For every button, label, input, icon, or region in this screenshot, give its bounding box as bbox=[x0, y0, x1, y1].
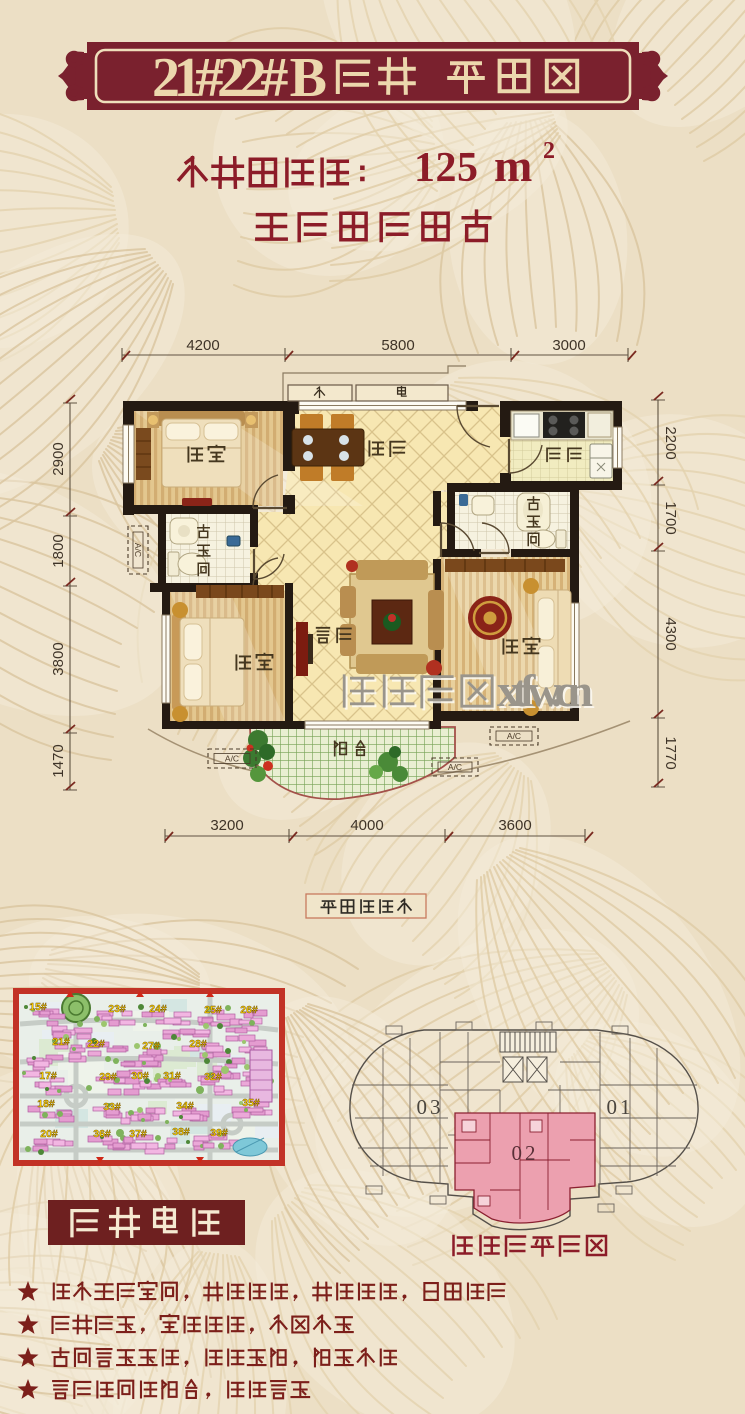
svg-text:26#: 26# bbox=[240, 1004, 258, 1016]
svg-text:A/C: A/C bbox=[507, 731, 521, 741]
svg-text:21#22# B: 21#22# B bbox=[152, 47, 327, 109]
svg-text:20#: 20# bbox=[40, 1128, 58, 1140]
svg-text:02: 02 bbox=[512, 1141, 539, 1165]
svg-text:38#: 38# bbox=[172, 1126, 190, 1138]
svg-text:4300: 4300 bbox=[662, 617, 679, 650]
svg-text:xtfw.cn: xtfw.cn bbox=[497, 665, 593, 716]
svg-text:25#: 25# bbox=[204, 1004, 222, 1016]
svg-text:15#: 15# bbox=[29, 1001, 47, 1013]
svg-text:3800: 3800 bbox=[50, 642, 67, 675]
svg-text:22#: 22# bbox=[87, 1038, 105, 1050]
svg-text:01: 01 bbox=[607, 1095, 634, 1119]
svg-text:35#: 35# bbox=[242, 1097, 260, 1109]
svg-text:3200: 3200 bbox=[210, 817, 243, 834]
svg-text:2: 2 bbox=[543, 138, 555, 164]
svg-text:36#: 36# bbox=[93, 1128, 111, 1140]
svg-text:03: 03 bbox=[417, 1095, 444, 1119]
svg-text:28#: 28# bbox=[189, 1038, 207, 1050]
svg-text:A/C: A/C bbox=[225, 754, 239, 764]
svg-text:21#: 21# bbox=[52, 1036, 70, 1048]
svg-text:23#: 23# bbox=[108, 1003, 126, 1015]
svg-text:3600: 3600 bbox=[498, 817, 531, 834]
svg-text:4000: 4000 bbox=[350, 817, 383, 834]
svg-text:3000: 3000 bbox=[552, 337, 585, 354]
svg-text:18#: 18# bbox=[37, 1098, 55, 1110]
svg-text:m: m bbox=[494, 140, 532, 191]
svg-text:33#: 33# bbox=[103, 1101, 121, 1113]
svg-text:1770: 1770 bbox=[662, 736, 679, 769]
svg-text:5800: 5800 bbox=[381, 337, 414, 354]
svg-text:24#: 24# bbox=[149, 1003, 167, 1015]
svg-text:27#: 27# bbox=[142, 1040, 160, 1052]
svg-text:A/C: A/C bbox=[133, 543, 143, 557]
svg-text:2200: 2200 bbox=[662, 426, 679, 459]
svg-text:31#: 31# bbox=[163, 1070, 181, 1082]
svg-text:2900: 2900 bbox=[50, 442, 67, 475]
svg-text:125: 125 bbox=[414, 145, 478, 191]
svg-text:39#: 39# bbox=[210, 1127, 228, 1139]
svg-text:1700: 1700 bbox=[662, 501, 679, 534]
svg-text:17#: 17# bbox=[39, 1070, 57, 1082]
svg-text:4200: 4200 bbox=[186, 337, 219, 354]
svg-text:37#: 37# bbox=[129, 1128, 147, 1140]
svg-text:32#: 32# bbox=[204, 1071, 222, 1083]
svg-text:1800: 1800 bbox=[50, 534, 67, 567]
svg-text:1470: 1470 bbox=[50, 744, 67, 777]
svg-text:29#: 29# bbox=[99, 1071, 117, 1083]
svg-text:30#: 30# bbox=[131, 1070, 149, 1082]
svg-text:A/C: A/C bbox=[448, 762, 462, 772]
svg-text:34#: 34# bbox=[176, 1100, 194, 1112]
